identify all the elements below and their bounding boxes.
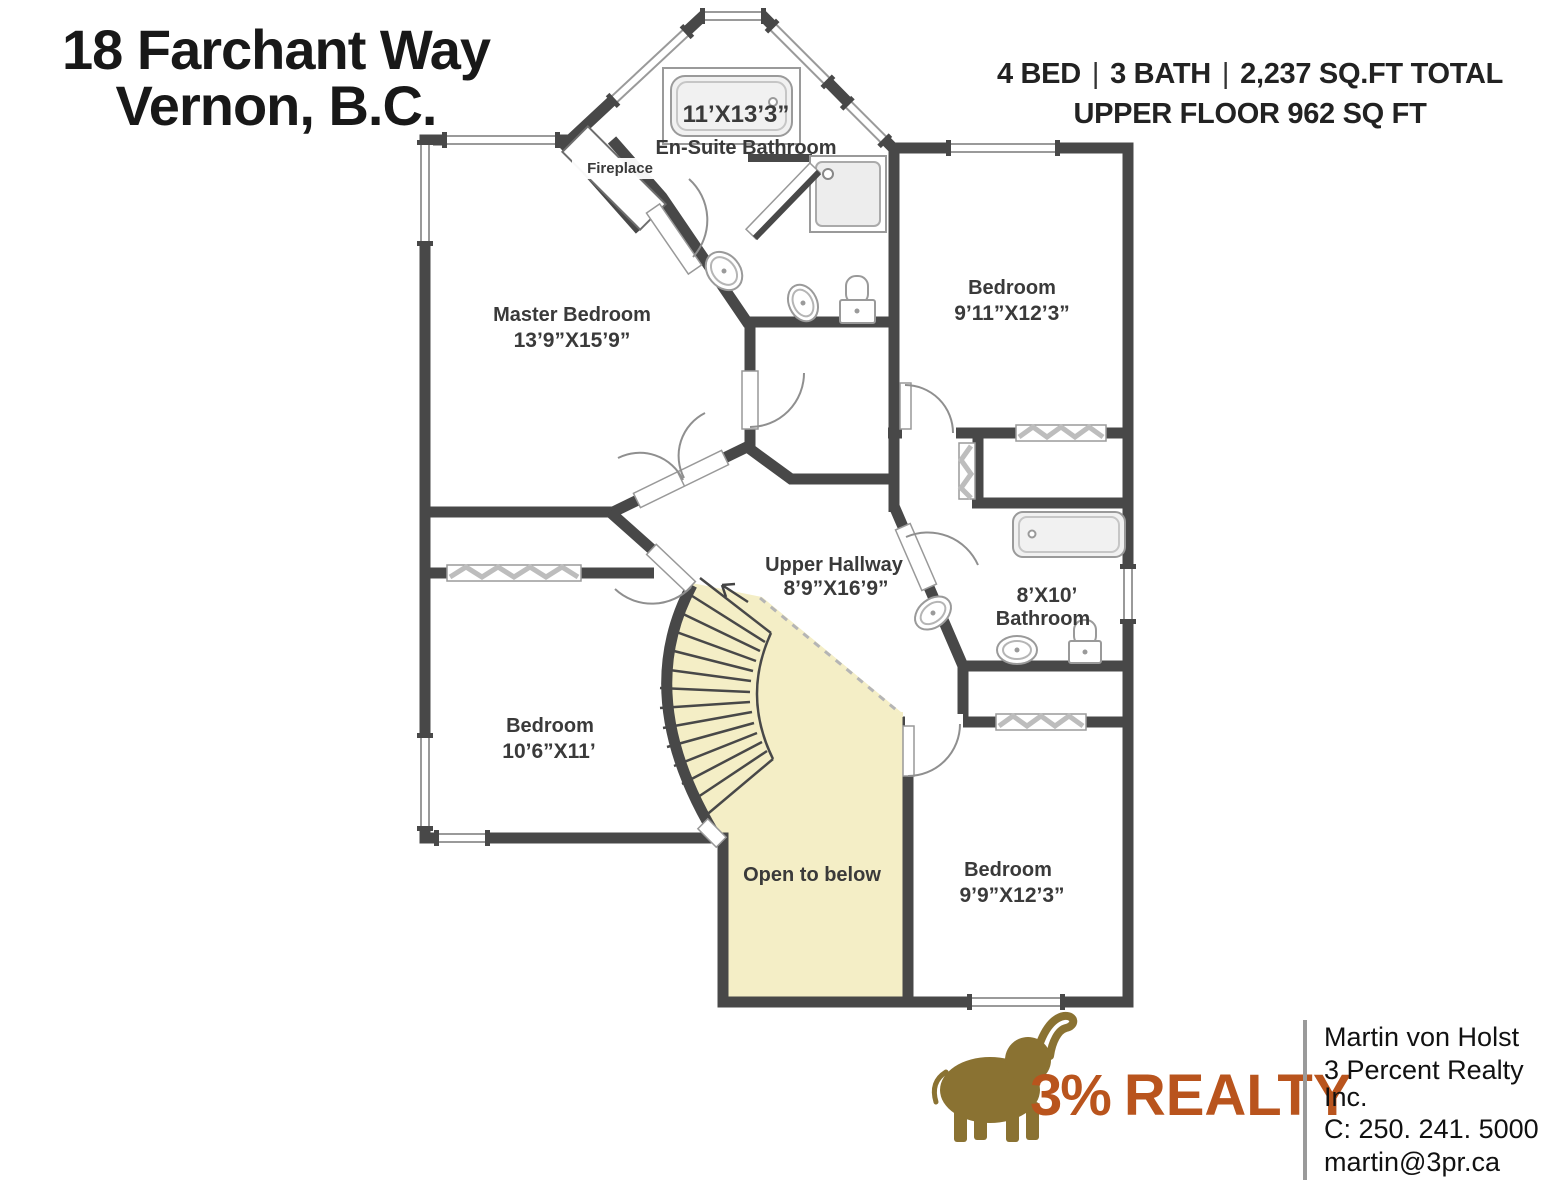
room-dims-ensuite: 11’X13’3” (683, 101, 790, 128)
window (840, 96, 892, 148)
agent-info: Martin von Holst 3 Percent Realty Inc. C… (1303, 1020, 1553, 1180)
room-label-bathroom: Bathroom (996, 608, 1090, 630)
closet-bedroom-bottom-right (996, 714, 1086, 730)
agent-email: martin@3pr.ca (1324, 1149, 1553, 1176)
window (417, 733, 433, 831)
room-label-ensuite: En-Suite Bathroom (655, 137, 836, 159)
walkin-closet-door (742, 371, 804, 429)
bathroom-toilet (997, 636, 1037, 664)
window (967, 994, 1065, 1010)
window (1120, 564, 1136, 624)
open-to-below-label: Open to below (743, 864, 881, 886)
closet-bedroom-bottom-left (447, 565, 581, 581)
window (417, 140, 433, 246)
linen-closet (959, 443, 975, 499)
brand-percent: 3% (1030, 1063, 1110, 1128)
master-double-door (618, 413, 729, 508)
room-label-master-bedroom: Master Bedroom (493, 304, 651, 326)
page: 18 Farchant Way Vernon, B.C. 4 BED|3 BAT… (0, 0, 1553, 1200)
room-dims-bathroom: 8’X10’ (1017, 584, 1078, 607)
window (946, 140, 1060, 156)
room-label-bedroom-bottom-right: Bedroom (964, 859, 1052, 881)
room-label-bedroom-top-right: Bedroom (968, 277, 1056, 299)
room-dims-bedroom-bottom-right: 9’9”X12’3” (959, 884, 1064, 907)
agent-name: Martin von Holst (1324, 1024, 1553, 1051)
agent-phone: C: 250. 241. 5000 (1324, 1116, 1553, 1143)
bedroom-top-right-door (900, 383, 956, 441)
hall-funnel-angled-wall (610, 512, 656, 553)
window (442, 132, 560, 148)
bathroom-bathtub (1013, 512, 1125, 557)
window (700, 8, 766, 24)
bedroom-bottom-right-door (903, 714, 963, 776)
ensuite-pedestal-sink (840, 276, 875, 323)
ensuite-shower (746, 156, 886, 239)
closet-bedroom-top-right (1016, 425, 1106, 441)
room-dims-upper-hallway: 8’9”X16’9” (783, 577, 888, 600)
room-dims-master-bedroom: 13’9”X15’9” (514, 329, 631, 352)
room-dims-bedroom-bottom-left: 10’6”X11’ (502, 740, 595, 763)
room-dims-bedroom-top-right: 9’11”X12’3” (954, 302, 1070, 325)
room-label-bedroom-bottom-left: Bedroom (506, 715, 594, 737)
fireplace-label: Fireplace (587, 160, 653, 177)
bathroom-door (896, 524, 978, 591)
agent-brokerage: 3 Percent Realty Inc. (1324, 1057, 1553, 1111)
room-label-upper-hallway: Upper Hallway (765, 554, 904, 576)
window (434, 830, 490, 846)
walkin-closet-walls (750, 318, 894, 479)
